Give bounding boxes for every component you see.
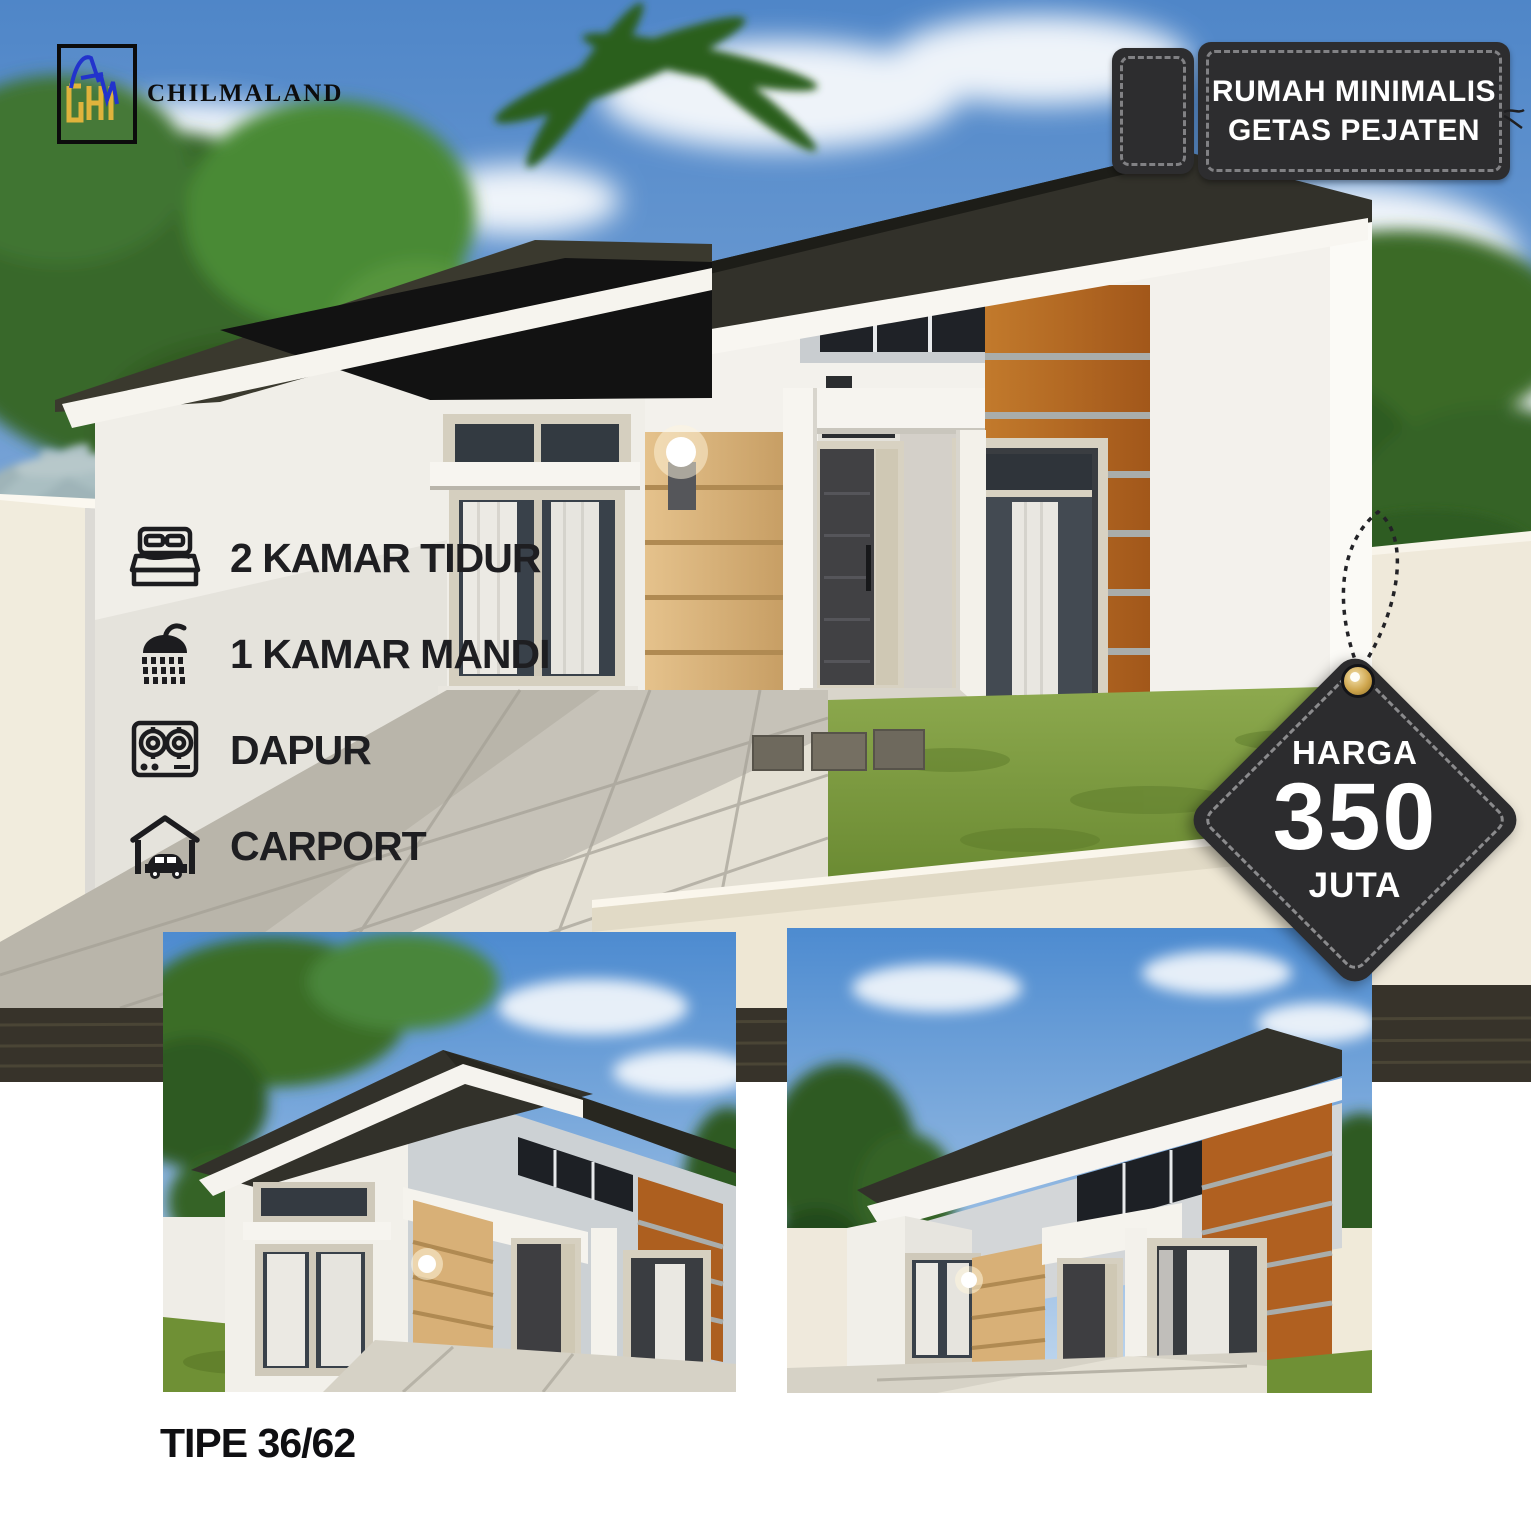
- portico-pillar-left: [783, 388, 817, 730]
- feature-row-kitchen: DAPUR: [126, 714, 550, 786]
- front-door: [812, 441, 904, 689]
- location-line2: GETAS PEJATEN: [1228, 111, 1480, 150]
- feature-label-carport: CARPORT: [230, 823, 426, 870]
- carport-icon: [126, 811, 204, 881]
- shower-icon: [126, 619, 204, 689]
- price-tag: HARGA 350 JUTA: [1150, 470, 1531, 1030]
- feature-row-bedrooms: 2 KAMAR TIDUR: [126, 522, 550, 594]
- porch-light: [826, 376, 852, 388]
- location-tag-flap: [1112, 48, 1194, 174]
- brand-logo: CHILMALAND: [57, 44, 343, 144]
- bed-icon: [126, 523, 204, 593]
- feature-row-carport: CARPORT: [126, 810, 550, 882]
- feature-label-kitchen: DAPUR: [230, 727, 371, 774]
- door-handle: [866, 545, 871, 591]
- feature-list: 2 KAMAR TIDUR 1 KAMAR MANDI: [126, 522, 550, 906]
- price-text: HARGA 350 JUTA: [1235, 700, 1475, 940]
- feature-row-bathroom: 1 KAMAR MANDI: [126, 618, 550, 690]
- brand-logo-mark: [57, 44, 137, 144]
- feature-label-bathroom: 1 KAMAR MANDI: [230, 631, 550, 678]
- location-line1: RUMAH MINIMALIS: [1212, 72, 1496, 111]
- price-tag-grommet: [1341, 664, 1375, 698]
- stove-icon: [126, 715, 204, 785]
- property-poster: { "brand": { "name": "CHILMALAND" }, "lo…: [0, 0, 1531, 1531]
- location-tag-body: RUMAH MINIMALIS GETAS PEJATEN: [1198, 42, 1510, 180]
- tag-string: [1502, 100, 1526, 130]
- house-type-label: TIPE 36/62: [160, 1420, 355, 1467]
- feature-label-bedrooms: 2 KAMAR TIDUR: [230, 535, 540, 582]
- price-amount: 350: [1273, 772, 1438, 862]
- house-photo-left-angle: [163, 932, 736, 1392]
- step-stones: [753, 730, 924, 770]
- brand-name: CHILMALAND: [147, 80, 343, 108]
- location-tag: RUMAH MINIMALIS GETAS PEJATEN: [1106, 40, 1526, 182]
- price-unit: JUTA: [1309, 866, 1402, 906]
